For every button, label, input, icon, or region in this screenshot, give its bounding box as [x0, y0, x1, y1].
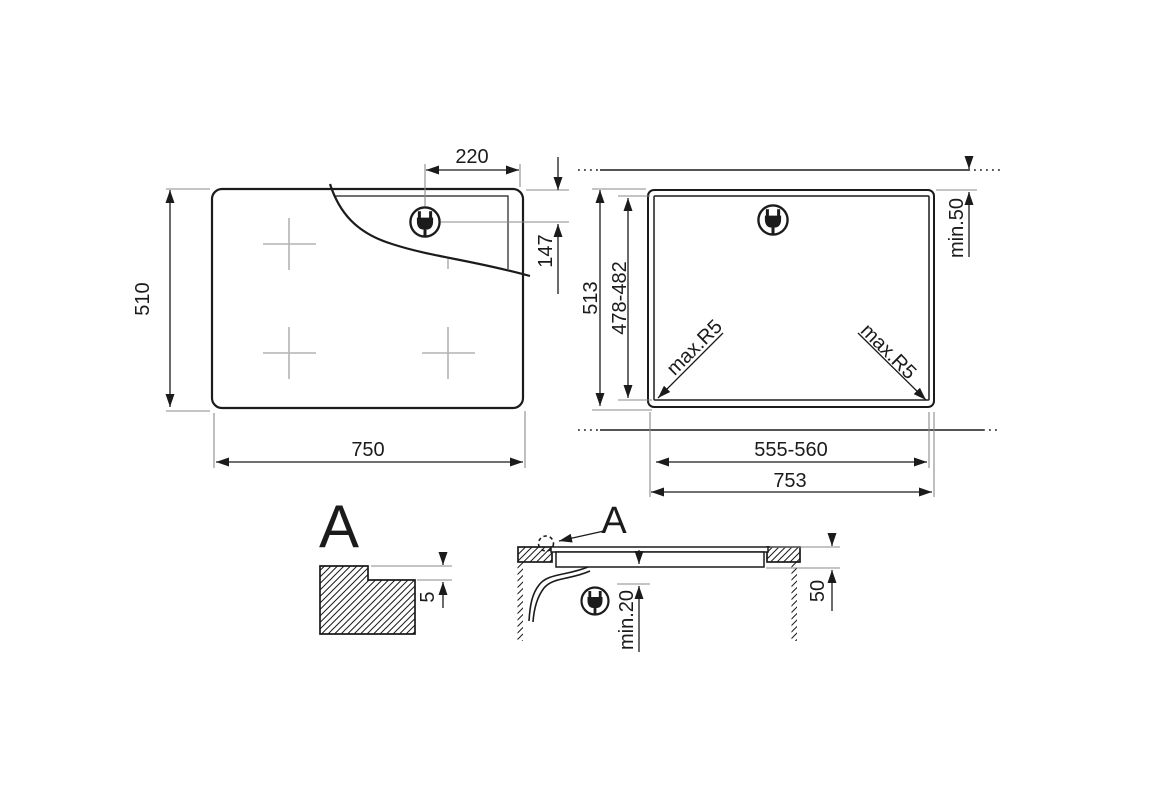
cutout-overall-height-label: 513 [580, 281, 602, 314]
plan-view: 510 750 220 147 [132, 146, 569, 468]
cutout-view: 513 478-482 min.50 max.R5 max.R5 555-560… [578, 157, 1001, 497]
worktop-rebate-section [320, 566, 415, 634]
bottom-clearance-label: min.20 [616, 590, 638, 650]
plug-offset-x-dim-label: 220 [455, 146, 488, 168]
rear-clearance-label: min.50 [946, 198, 968, 258]
corner-radius-label-right: max.R5 [856, 320, 920, 384]
power-plug-icon [410, 207, 439, 236]
cabinet-wall-left [518, 562, 524, 641]
recess-depth-label: 50 [807, 580, 829, 602]
appliance-footprint [648, 190, 934, 407]
detail-a-view: A 5 [319, 493, 452, 634]
rebate-depth-label: 5 [417, 591, 439, 602]
plug-offset-y-dim-label: 147 [535, 234, 557, 267]
cutout-height-label: 478-482 [609, 261, 631, 334]
cutout-overall-width-label: 753 [773, 470, 806, 492]
worktop-section-right [767, 547, 800, 562]
power-plug-icon [758, 205, 787, 234]
detail-ref-arrow [559, 531, 604, 541]
cutout-rectangle [654, 196, 929, 400]
hob-body [556, 552, 764, 567]
burner-cross [263, 218, 316, 270]
power-cable [529, 567, 590, 622]
detail-a-title: A [319, 493, 359, 560]
burner-cross [263, 327, 316, 379]
corner-radius-label-left: max.R5 [663, 316, 727, 380]
installation-drawing: 510 750 220 147 [0, 0, 1150, 801]
worktop-section-left [518, 547, 552, 562]
section-view: A min.20 50 [518, 500, 841, 652]
detail-ref-label: A [601, 500, 627, 542]
power-plug-icon [582, 588, 609, 615]
cutout-width-label: 555-560 [754, 439, 827, 461]
burner-cross [422, 327, 475, 379]
plan-height-dim-label: 510 [132, 282, 154, 315]
cabinet-wall-right [792, 562, 798, 641]
plan-width-dim-label: 750 [351, 439, 384, 461]
drawing-canvas: 510 750 220 147 [0, 0, 1150, 801]
